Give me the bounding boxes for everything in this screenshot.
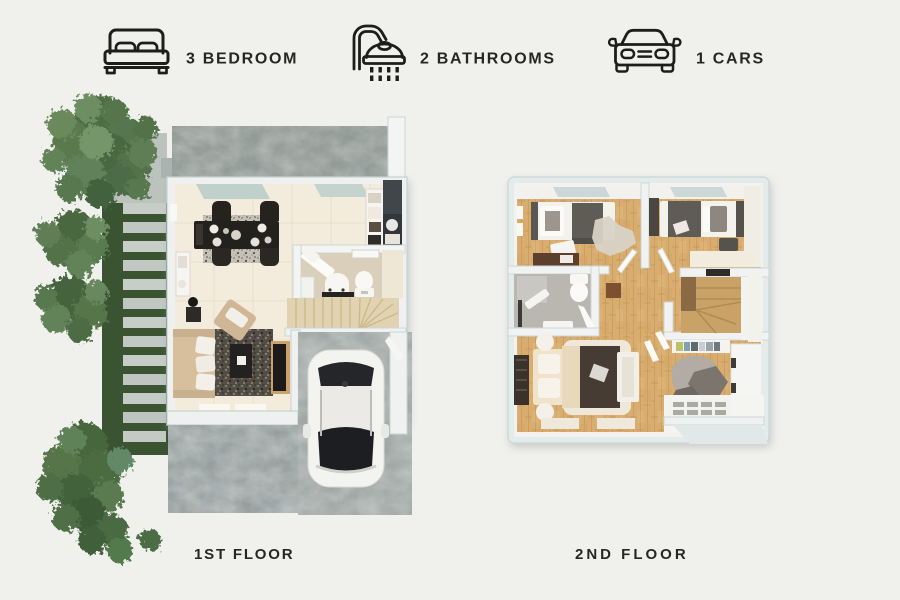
svg-text:3 BEDROOM: 3 BEDROOM	[186, 51, 298, 68]
svg-text:2 BATHROOMS: 2 BATHROOMS	[420, 51, 556, 68]
svg-text:1ST FLOOR: 1ST FLOOR	[194, 546, 294, 563]
svg-text:2ND FLOOR: 2ND FLOOR	[575, 546, 689, 563]
svg-text:1 CARS: 1 CARS	[696, 51, 765, 68]
